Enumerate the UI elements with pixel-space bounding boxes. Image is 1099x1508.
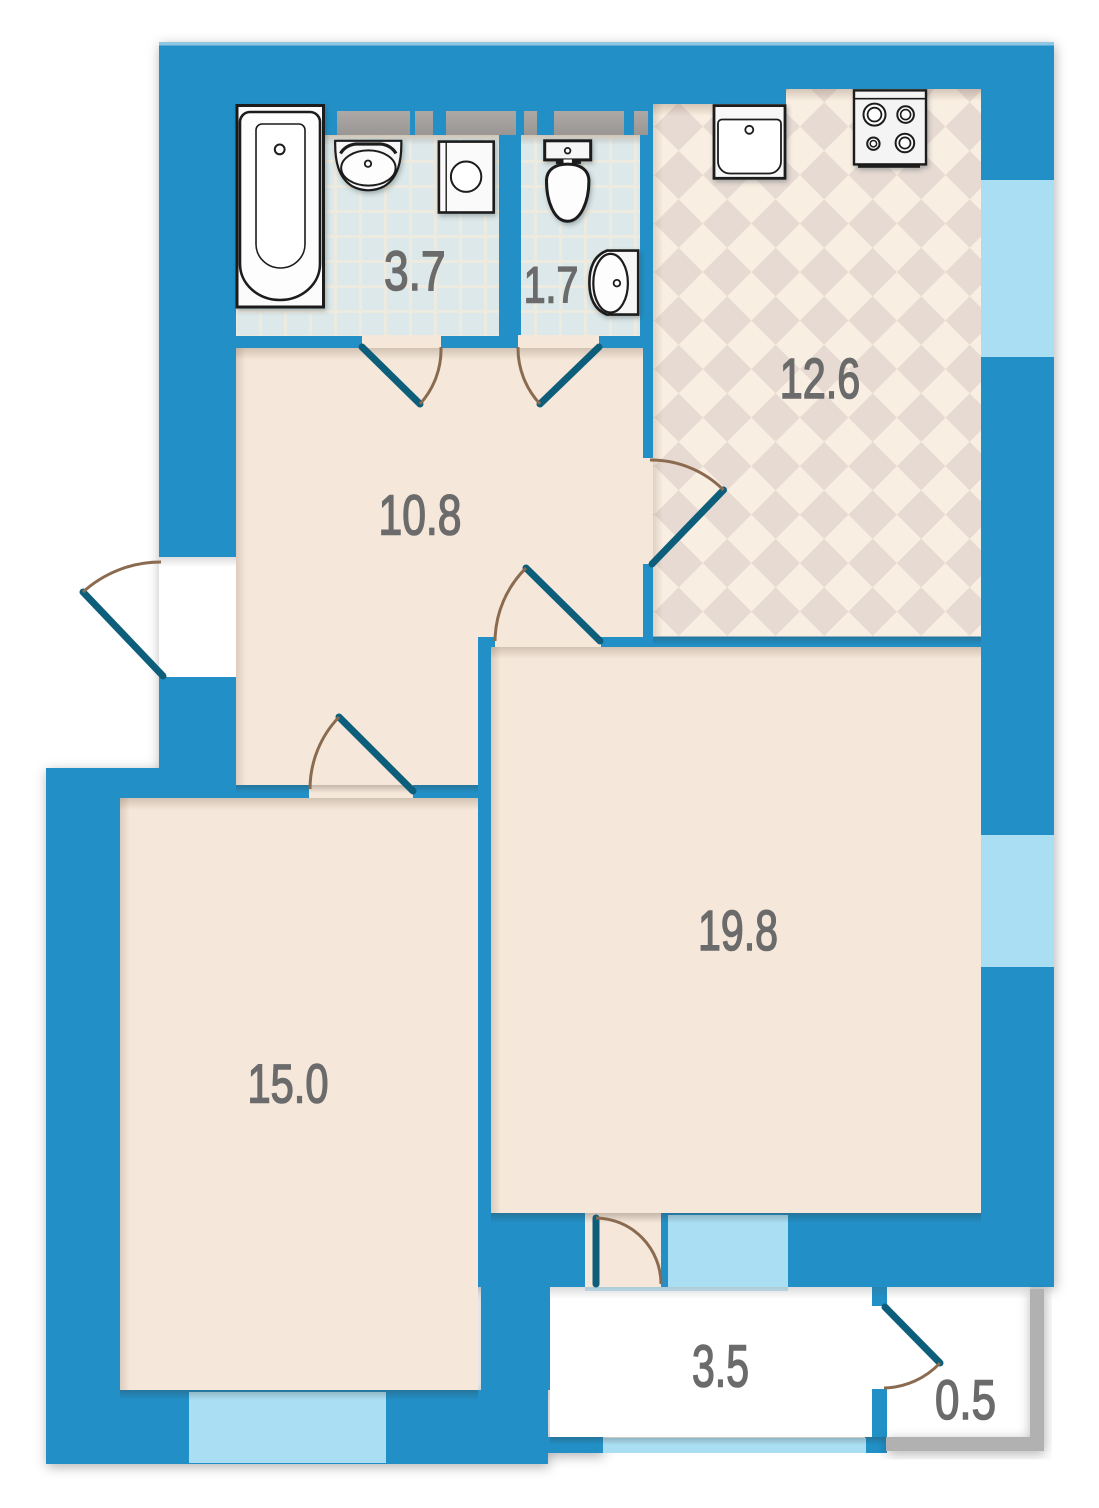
svg-text:12.6: 12.6	[780, 347, 861, 411]
svg-text:15.0: 15.0	[248, 1053, 329, 1115]
svg-text:10.8: 10.8	[379, 484, 462, 548]
svg-text:19.8: 19.8	[698, 899, 778, 963]
svg-text:1.7: 1.7	[524, 256, 579, 313]
svg-text:3.5: 3.5	[692, 1334, 749, 1400]
svg-text:3.7: 3.7	[384, 239, 446, 302]
svg-text:0.5: 0.5	[935, 1368, 996, 1431]
